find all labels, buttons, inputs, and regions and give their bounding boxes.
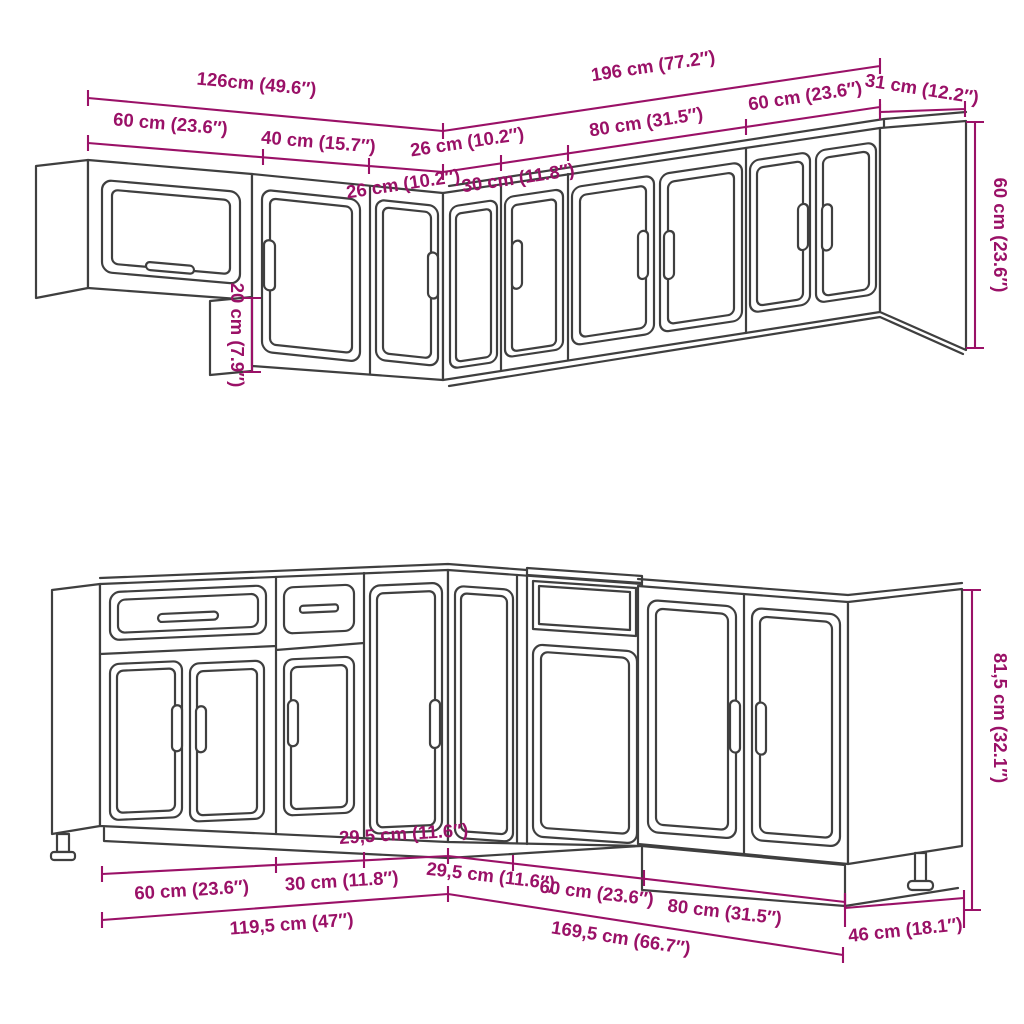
wall-door-60b-handle [822, 204, 832, 251]
kitchen-cabinet-set-diagram: 126cm (49.6″) 196 cm (77.2″) 31 cm (12.2… [0, 0, 1024, 1024]
wall-door-60a-panel [757, 161, 803, 306]
dim-label-bottom-overall-right: 169,5 cm (66.7″) [550, 916, 692, 958]
base-corner-door-b-panel [760, 616, 832, 838]
wall-glass-door-glass [112, 190, 230, 274]
base-door-295-right-panel [461, 593, 507, 834]
dim-label-top-60-left: 60 cm (23.6″) [112, 108, 228, 138]
base-left-side-panel [52, 584, 100, 834]
base-drawer-30-handle [300, 604, 338, 613]
wall-end-panel [880, 121, 966, 350]
base-cabinets-drawing [51, 564, 962, 906]
dim-label-bottom-30: 30 cm (11.8″) [284, 867, 399, 895]
base-left-leg-foot [51, 852, 75, 860]
wall-door-80a-panel [580, 185, 646, 337]
base-corner-leg-foot [908, 881, 933, 890]
wall-glass-cabinet-side [36, 160, 88, 298]
base-door-60a-panel [117, 668, 175, 813]
wall-door-26-left-panel [383, 207, 431, 358]
wall-door-80a-handle [638, 230, 648, 279]
base-door-60b-handle [196, 706, 206, 752]
dim-label-bottom-overall-left: 119,5 cm (47″) [229, 908, 354, 938]
dim-label-top-end-depth: 31 cm (12.2″) [864, 69, 981, 108]
base-door-60a-handle [172, 705, 182, 751]
base-corner-door-a-handle [730, 700, 740, 753]
wall-cabinets-drawing [36, 112, 966, 386]
wall-door-60a-handle [798, 203, 808, 250]
dim-label-top-offset-height: 20 cm (7.9″) [227, 283, 248, 388]
product-dimension-diagram: 126cm (49.6″) 196 cm (77.2″) 31 cm (12.2… [0, 0, 1024, 1024]
dim-line-bottom-height [963, 590, 981, 910]
base-corner-door-a-panel [656, 608, 728, 830]
base-corner-door-b-handle [756, 702, 766, 755]
wall-door-40-panel [270, 198, 352, 353]
base-left-leg [57, 834, 69, 852]
dim-line-top-height [966, 122, 984, 348]
dim-label-bottom-60-right: 60 cm (23.6″) [539, 876, 655, 910]
dim-label-top-height: 60 cm (23.6″) [990, 178, 1011, 293]
wall-door-26-left-handle [428, 252, 438, 299]
wall-door-26-right-panel [456, 209, 491, 362]
base-door-295-left-handle [430, 700, 440, 748]
dim-label-top-overall-right: 196 cm (77.2″) [590, 46, 717, 85]
wall-door-80b-panel [668, 172, 734, 324]
wall-door-40-handle [264, 240, 275, 291]
dim-label-bottom-height: 81,5 cm (32.1″) [990, 653, 1011, 783]
base-drawer-60-handle [158, 611, 218, 622]
dim-label-bottom-295-right: 29,5 cm (11.6″) [425, 858, 556, 894]
dim-label-bottom-60-left: 60 cm (23.6″) [134, 876, 250, 904]
dim-label-top-40: 40 cm (15.7″) [260, 126, 376, 156]
base-corner-leg [915, 853, 926, 882]
wall-door-80b-handle [664, 230, 674, 279]
wall-door-30-handle [512, 240, 522, 289]
base-door-30-panel [291, 665, 347, 809]
dim-label-bottom-depth: 46 cm (18.1″) [847, 913, 963, 946]
base-sink-door-panel [541, 652, 629, 834]
dim-label-top-overall-left: 126cm (49.6″) [196, 68, 317, 100]
base-corner-side-panel [848, 589, 962, 864]
base-door-30-handle [288, 700, 298, 746]
base-door-295-left-panel [377, 591, 435, 828]
